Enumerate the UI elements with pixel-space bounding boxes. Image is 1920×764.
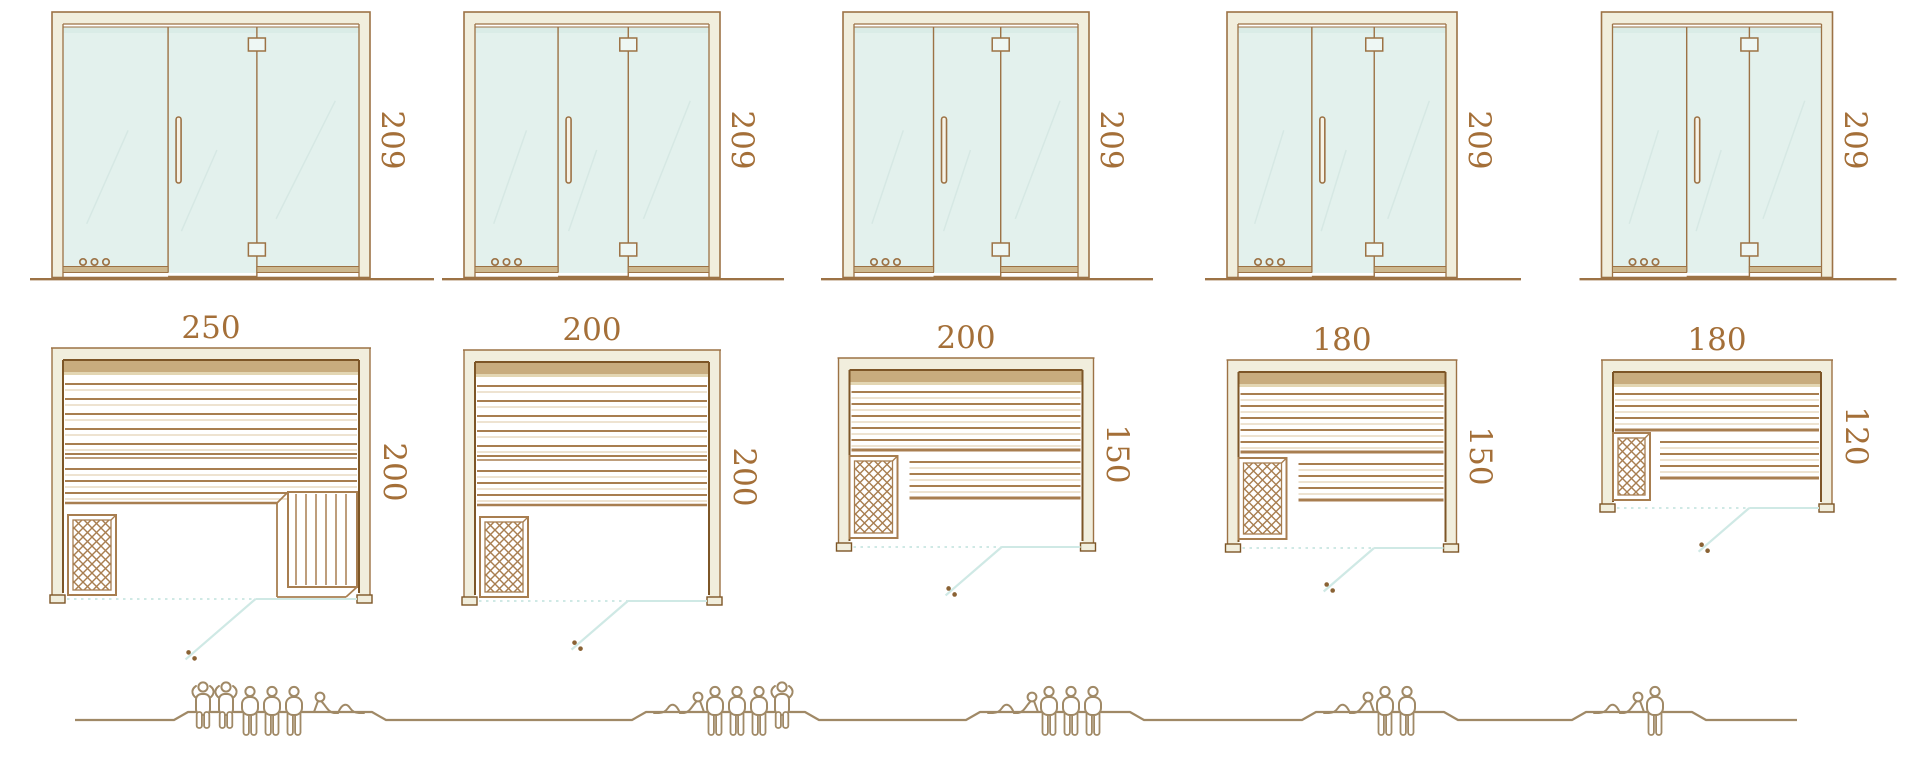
person-lying-icon: [1324, 693, 1374, 713]
glass-panels: [475, 27, 709, 273]
glass-panels: [854, 27, 1078, 273]
person-sitting-icon: [264, 687, 280, 735]
heater-lattice-icon: [415, 517, 593, 597]
plan-width-label-4: 180: [1312, 322, 1371, 358]
elevation-height-label-1: 209: [374, 110, 410, 169]
back-wall-band: [64, 361, 358, 375]
floor-plan-3: [783, 358, 1096, 597]
person-sitting-icon: [751, 687, 767, 735]
bench-slats: [65, 384, 357, 503]
person-sitting-icon: [729, 687, 745, 735]
person-sitting-icon: [1085, 687, 1101, 735]
lower-bench: [277, 492, 357, 597]
plan-depth-label-5: 120: [1838, 406, 1874, 465]
door-handle-icon: [566, 117, 571, 183]
door-swing-icon: [67, 599, 357, 661]
person-lying-icon: [988, 693, 1038, 713]
floor-plan-2: [415, 350, 722, 651]
door-handle-icon: [176, 117, 181, 183]
elevation-height-label-2: 209: [724, 110, 760, 169]
plan-depth-label-1: 200: [376, 442, 412, 501]
door-swing-icon: [854, 547, 1081, 597]
door-handle-icon: [1320, 117, 1325, 183]
model-column-2: 209 200 200: [415, 12, 784, 651]
door-swing-icon: [479, 601, 707, 651]
person-sitting-icon: [242, 687, 258, 735]
person-standing-icon: [771, 682, 792, 728]
person-lying-icon: [654, 693, 704, 713]
elevation-height-label-4: 209: [1461, 110, 1497, 169]
glass-panels: [1613, 27, 1822, 273]
glass-panels: [1238, 27, 1446, 273]
capacity-group-1: [192, 682, 364, 735]
elevation-height-label-3: 209: [1093, 110, 1129, 169]
elevation-height-label-5: 209: [1837, 110, 1873, 169]
capacity-row: [75, 682, 1797, 735]
door-handle-icon: [1695, 117, 1700, 183]
plan-depth-label-3: 150: [1099, 424, 1135, 483]
bench-slats: [477, 386, 707, 505]
model-column-3: 209 200 150: [783, 12, 1154, 597]
person-sitting-icon: [707, 687, 723, 735]
person-standing-icon: [215, 682, 236, 728]
person-lying-icon: [314, 693, 364, 713]
person-standing-icon: [192, 682, 213, 728]
back-wall-band: [851, 371, 1082, 385]
person-lying-icon: [1594, 693, 1644, 713]
door-swing-icon: [1243, 548, 1444, 593]
back-wall-band: [1614, 373, 1820, 387]
person-sitting-icon: [1377, 687, 1393, 735]
person-sitting-icon: [1041, 687, 1057, 735]
floor-plan-1: [3, 348, 372, 661]
capacity-group-5: [1594, 687, 1663, 735]
back-wall-band: [1240, 373, 1445, 387]
person-sitting-icon: [1399, 687, 1415, 735]
plan-width-label-2: 200: [562, 312, 621, 348]
model-column-4: 209 180 150: [1173, 12, 1522, 593]
back-wall-band: [476, 363, 708, 377]
plan-width-label-5: 180: [1687, 322, 1746, 358]
front-elevation-1: [30, 12, 434, 279]
model-column-5: 209 180 120: [1561, 12, 1897, 553]
door-swing-icon: [1617, 508, 1819, 553]
door-handle-icon: [942, 117, 947, 183]
sauna-size-comparison-diagram: 209 250 200 209 200 200 209 200 150 209 …: [0, 0, 1920, 764]
glass-panels: [63, 27, 359, 273]
plan-width-label-1: 250: [181, 310, 240, 346]
plan-width-label-3: 200: [936, 320, 995, 356]
person-sitting-icon: [286, 687, 302, 735]
plan-depth-label-4: 150: [1462, 426, 1498, 485]
floor-plan-5: [1561, 360, 1834, 553]
capacity-group-2: [654, 682, 793, 735]
plan-depth-label-2: 200: [726, 447, 762, 506]
person-sitting-icon: [1647, 687, 1663, 735]
model-column-1: 209 250 200: [3, 12, 434, 661]
person-sitting-icon: [1063, 687, 1079, 735]
heater-lattice-icon: [3, 515, 181, 595]
floor-plan-4: [1173, 360, 1459, 593]
